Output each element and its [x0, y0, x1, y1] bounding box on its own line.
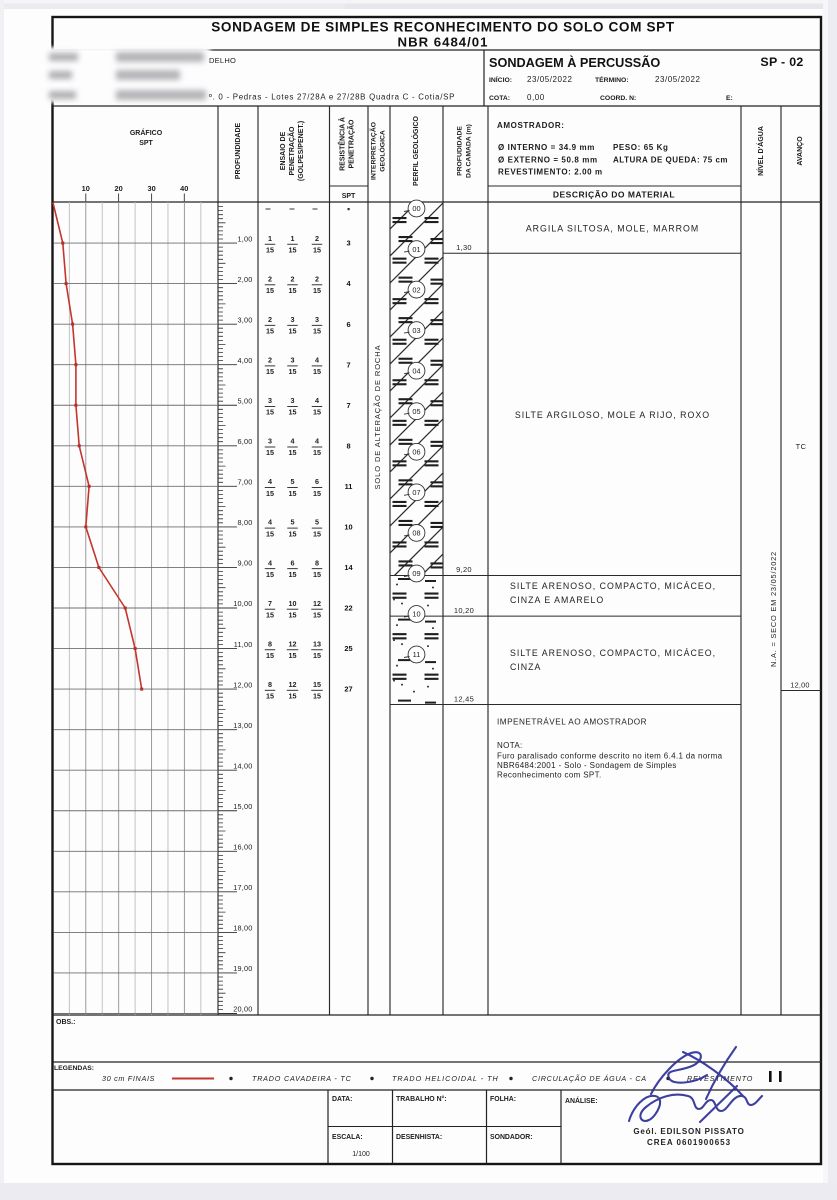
svg-text:15: 15 [313, 680, 321, 689]
svg-text:15: 15 [313, 286, 321, 295]
svg-text:06: 06 [412, 448, 420, 457]
svg-text:8,00: 8,00 [237, 518, 252, 527]
svg-text:4: 4 [268, 518, 272, 527]
svg-text:11,00: 11,00 [234, 640, 253, 649]
svg-text:22: 22 [344, 604, 352, 613]
svg-text:SONDAGEM À PERCUSSÃO: SONDAGEM À PERCUSSÃO [489, 55, 660, 70]
svg-text:3: 3 [291, 315, 295, 324]
svg-text:GRÁFICO: GRÁFICO [130, 128, 163, 137]
svg-text:20,00: 20,00 [233, 1005, 252, 1014]
svg-text:Reconhecimento com SPT.: Reconhecimento com SPT. [497, 771, 602, 780]
svg-text:1: 1 [268, 234, 272, 243]
svg-text:1: 1 [291, 234, 295, 243]
svg-text:15: 15 [313, 570, 321, 579]
svg-text:12,45: 12,45 [454, 695, 474, 704]
svg-text:15: 15 [289, 489, 297, 498]
svg-text:ANÁLISE:: ANÁLISE: [565, 1096, 598, 1105]
svg-text:15: 15 [266, 610, 274, 619]
svg-text:15: 15 [313, 408, 321, 417]
svg-text:PESO: 65 Kg: PESO: 65 Kg [613, 143, 669, 152]
svg-text:4: 4 [268, 477, 272, 486]
svg-text:(GOLPES/PENET.): (GOLPES/PENET.) [298, 121, 305, 181]
svg-text:30: 30 [147, 184, 155, 193]
svg-text:DESENHISTA:: DESENHISTA: [396, 1134, 442, 1141]
svg-text:15: 15 [266, 651, 274, 660]
svg-text:º. 0 - Pedras - Lotes 27/28A e: º. 0 - Pedras - Lotes 27/28A e 27/28B Qu… [209, 93, 455, 102]
svg-text:3: 3 [268, 396, 272, 405]
svg-text:NBR6484:2001 - Solo - Sondagem: NBR6484:2001 - Solo - Sondagem de Simple… [497, 761, 677, 770]
svg-text:DA CAMADA (m): DA CAMADA (m) [466, 124, 473, 178]
svg-text:SPT: SPT [342, 193, 356, 200]
svg-text:12: 12 [289, 680, 297, 689]
svg-text:Ø EXTERNO = 50.8 mm: Ø EXTERNO = 50.8 mm [498, 156, 598, 165]
svg-text:ALTURA DE QUEDA: 75 cm: ALTURA DE QUEDA: 75 cm [613, 156, 728, 165]
svg-text:15: 15 [289, 448, 297, 457]
svg-text:Furo paralisado conforme descr: Furo paralisado conforme descrito no ite… [497, 752, 723, 761]
svg-text:15: 15 [289, 570, 297, 579]
svg-text:2: 2 [268, 274, 272, 283]
svg-text:30 cm FINAIS: 30 cm FINAIS [102, 1074, 155, 1083]
svg-text:10: 10 [344, 523, 352, 532]
svg-text:6: 6 [291, 558, 295, 567]
svg-text:SP - 02: SP - 02 [760, 55, 803, 69]
svg-text:9,20: 9,20 [456, 565, 472, 574]
svg-text:2: 2 [291, 274, 295, 283]
svg-text:00: 00 [412, 204, 420, 213]
svg-text:1,00: 1,00 [237, 234, 252, 243]
svg-text:15: 15 [289, 651, 297, 660]
svg-text:08: 08 [412, 529, 420, 538]
svg-text:12,00: 12,00 [233, 680, 252, 689]
svg-text:7: 7 [346, 401, 350, 410]
svg-text:2,00: 2,00 [237, 275, 252, 284]
svg-text:7: 7 [268, 599, 272, 608]
svg-text:TC: TC [796, 442, 807, 451]
svg-text:15: 15 [313, 327, 321, 336]
svg-text:N.A. = SECO EM 23/05/2022: N.A. = SECO EM 23/05/2022 [769, 551, 778, 667]
svg-text:TRADO CAVADEIRA - TC: TRADO CAVADEIRA - TC [252, 1074, 352, 1083]
svg-text:15: 15 [289, 692, 297, 701]
svg-text:1/100: 1/100 [352, 1151, 370, 1158]
svg-text:CINZA E AMARELO: CINZA E AMARELO [510, 595, 604, 605]
svg-text:15: 15 [289, 529, 297, 538]
svg-text:07: 07 [412, 488, 420, 497]
svg-text:15,00: 15,00 [233, 802, 252, 811]
svg-text:OBS.:: OBS.: [56, 1019, 75, 1026]
svg-text:15: 15 [266, 529, 274, 538]
svg-text:20: 20 [114, 184, 122, 193]
svg-text:15: 15 [266, 448, 274, 457]
svg-text:INTERPRETAÇÃO: INTERPRETAÇÃO [369, 122, 378, 180]
svg-text:15: 15 [313, 692, 321, 701]
svg-text:8: 8 [268, 639, 272, 648]
svg-text:15: 15 [289, 327, 297, 336]
svg-text:23/05/2022: 23/05/2022 [527, 75, 573, 84]
svg-text:6,00: 6,00 [237, 437, 252, 446]
svg-text:COTA:: COTA: [489, 95, 510, 102]
svg-text:15: 15 [266, 489, 274, 498]
svg-text:18,00: 18,00 [233, 924, 252, 933]
svg-text:Ø INTERNO = 34.9 mm: Ø INTERNO = 34.9 mm [498, 143, 595, 152]
svg-text:SONDAGEM DE SIMPLES RECONHECIM: SONDAGEM DE SIMPLES RECONHECIMENTO DO SO… [211, 20, 675, 35]
svg-text:3: 3 [268, 437, 272, 446]
svg-text:TRABALHO N°:: TRABALHO N°: [396, 1095, 447, 1103]
svg-text:10,20: 10,20 [454, 606, 474, 615]
svg-text:15: 15 [313, 367, 321, 376]
svg-text:01: 01 [412, 245, 420, 254]
svg-text:15: 15 [266, 570, 274, 579]
svg-text:SILTE ARENOSO, COMPACTO, MICÁC: SILTE ARENOSO, COMPACTO, MICÁCEO, [510, 581, 716, 591]
svg-text:7,00: 7,00 [237, 478, 252, 487]
svg-text:FOLHA:: FOLHA: [490, 1096, 516, 1103]
svg-text:15: 15 [289, 610, 297, 619]
svg-text:8: 8 [268, 680, 272, 689]
svg-text:10,00: 10,00 [233, 599, 252, 608]
svg-text:3: 3 [291, 396, 295, 405]
svg-text:DATA:: DATA: [332, 1096, 352, 1103]
svg-text:15: 15 [266, 408, 274, 417]
svg-text:5: 5 [315, 518, 319, 527]
svg-text:2: 2 [268, 356, 272, 365]
svg-text:4: 4 [315, 356, 319, 365]
svg-text:15: 15 [266, 286, 274, 295]
svg-text:14,00: 14,00 [233, 761, 252, 770]
svg-text:GEOLÓGICA: GEOLÓGICA [378, 130, 387, 172]
svg-text:19,00: 19,00 [233, 964, 252, 973]
svg-text:Geól. EDILSON PISSATO: Geól. EDILSON PISSATO [633, 1127, 744, 1136]
svg-text:3: 3 [291, 356, 295, 365]
svg-text:27: 27 [344, 685, 352, 694]
svg-text:15: 15 [266, 692, 274, 701]
svg-text:REVESTIMENTO: 2.00 m: REVESTIMENTO: 2.00 m [498, 168, 603, 177]
svg-text:2: 2 [315, 234, 319, 243]
svg-text:25: 25 [344, 644, 352, 653]
svg-text:ARGILA SILTOSA, MOLE, MARROM: ARGILA SILTOSA, MOLE, MARROM [526, 224, 699, 234]
svg-text:LEGENDAS:: LEGENDAS: [54, 1065, 94, 1072]
svg-text:11: 11 [413, 650, 421, 659]
svg-text:INÍCIO:: INÍCIO: [489, 75, 512, 84]
svg-text:5,00: 5,00 [237, 396, 252, 405]
svg-text:DESCRIÇÃO DO MATERIAL: DESCRIÇÃO DO MATERIAL [553, 190, 675, 200]
svg-text:02: 02 [412, 285, 420, 294]
svg-text:15: 15 [289, 286, 297, 295]
svg-text:04: 04 [412, 366, 420, 375]
svg-text:15: 15 [313, 489, 321, 498]
svg-text:AMOSTRADOR:: AMOSTRADOR: [497, 121, 564, 130]
svg-text:4: 4 [315, 396, 319, 405]
svg-text:15: 15 [313, 529, 321, 538]
svg-text:16,00: 16,00 [233, 843, 252, 852]
svg-text:6: 6 [315, 477, 319, 486]
svg-text:DELHO: DELHO [209, 56, 236, 65]
svg-text:3: 3 [315, 315, 319, 324]
svg-text:CINZA: CINZA [510, 662, 541, 672]
svg-text:4,00: 4,00 [237, 356, 252, 365]
svg-text:5: 5 [291, 518, 295, 527]
svg-text:10: 10 [289, 599, 297, 608]
svg-text:0,00: 0,00 [527, 93, 545, 102]
svg-text:10: 10 [412, 610, 420, 619]
svg-text:E:: E: [726, 95, 733, 102]
svg-text:PENETRAÇÃO: PENETRAÇÃO [347, 119, 356, 169]
svg-text:23/05/2022: 23/05/2022 [655, 75, 701, 84]
svg-text:15: 15 [266, 367, 274, 376]
svg-text:6: 6 [346, 320, 350, 329]
svg-text:11: 11 [345, 482, 353, 491]
svg-text:PENETRAÇÃO: PENETRAÇÃO [287, 126, 296, 176]
svg-text:03: 03 [412, 326, 420, 335]
svg-text:12,00: 12,00 [790, 681, 809, 690]
svg-text:15: 15 [289, 245, 297, 254]
svg-text:2: 2 [315, 274, 319, 283]
svg-text:TÉRMINO:: TÉRMINO: [595, 75, 629, 84]
svg-text:12: 12 [313, 599, 321, 608]
svg-text:3: 3 [346, 239, 350, 248]
svg-text:NBR 6484/01: NBR 6484/01 [398, 35, 489, 50]
svg-text:12: 12 [289, 639, 297, 648]
svg-text:ENSAIO DE: ENSAIO DE [280, 131, 287, 170]
svg-text:10: 10 [82, 184, 90, 193]
svg-text:15: 15 [289, 408, 297, 417]
svg-text:COORD. N:: COORD. N: [600, 95, 636, 102]
svg-text:15: 15 [313, 651, 321, 660]
svg-text:PERFIL GEOLÓGICO: PERFIL GEOLÓGICO [411, 116, 420, 186]
svg-text:15: 15 [289, 367, 297, 376]
svg-text:CREA 0601900653: CREA 0601900653 [647, 1138, 731, 1147]
svg-text:PROFUDIDADE: PROFUDIDADE [457, 126, 464, 176]
svg-text:NÍVEL D'ÁGUA: NÍVEL D'ÁGUA [756, 126, 765, 176]
svg-text:NOTA:: NOTA: [497, 741, 523, 750]
svg-text:1,30: 1,30 [456, 243, 472, 252]
svg-text:3,00: 3,00 [237, 315, 252, 324]
svg-text:2: 2 [268, 315, 272, 324]
svg-text:15: 15 [313, 448, 321, 457]
svg-text:8: 8 [315, 558, 319, 567]
svg-text:SONDADOR:: SONDADOR: [490, 1134, 533, 1141]
svg-text:05: 05 [412, 407, 420, 416]
svg-text:09: 09 [412, 569, 420, 578]
svg-text:17,00: 17,00 [233, 883, 252, 892]
svg-text:5: 5 [291, 477, 295, 486]
svg-text:8: 8 [346, 441, 350, 450]
svg-text:RESISTÊNCIA À: RESISTÊNCIA À [338, 117, 347, 171]
svg-text:40: 40 [180, 184, 188, 193]
svg-text:4: 4 [291, 437, 295, 446]
svg-text:CIRCULAÇÃO DE ÁGUA - CA: CIRCULAÇÃO DE ÁGUA - CA [532, 1074, 647, 1083]
svg-text:IMPENETRÁVEL AO AMOSTRADOR: IMPENETRÁVEL AO AMOSTRADOR [497, 717, 647, 727]
svg-text:SILTE ARGILOSO, MOLE A RIJO, R: SILTE ARGILOSO, MOLE A RIJO, ROXO [515, 410, 710, 420]
svg-text:15: 15 [266, 327, 274, 336]
svg-text:SOLO DE ALTERAÇÃO DE ROCHA: SOLO DE ALTERAÇÃO DE ROCHA [373, 345, 382, 490]
svg-text:15: 15 [313, 245, 321, 254]
svg-text:13: 13 [313, 639, 321, 648]
svg-text:7: 7 [346, 360, 350, 369]
svg-text:ESCALA:: ESCALA: [332, 1134, 363, 1141]
svg-text:4: 4 [315, 437, 319, 446]
svg-text:SILTE ARENOSO, COMPACTO, MICÁC: SILTE ARENOSO, COMPACTO, MICÁCEO, [510, 648, 716, 658]
svg-text:14: 14 [344, 563, 353, 572]
svg-text:TRADO HELICOIDAL - TH: TRADO HELICOIDAL - TH [392, 1074, 499, 1083]
svg-text:AVANÇO: AVANÇO [797, 136, 804, 166]
svg-text:15: 15 [313, 610, 321, 619]
svg-text:13,00: 13,00 [233, 721, 252, 730]
svg-text:15: 15 [266, 245, 274, 254]
svg-text:PROFUNDIDADE: PROFUNDIDADE [235, 122, 242, 179]
svg-text:SPT: SPT [139, 140, 153, 147]
svg-text:4: 4 [268, 558, 272, 567]
svg-text:9,00: 9,00 [237, 559, 252, 568]
